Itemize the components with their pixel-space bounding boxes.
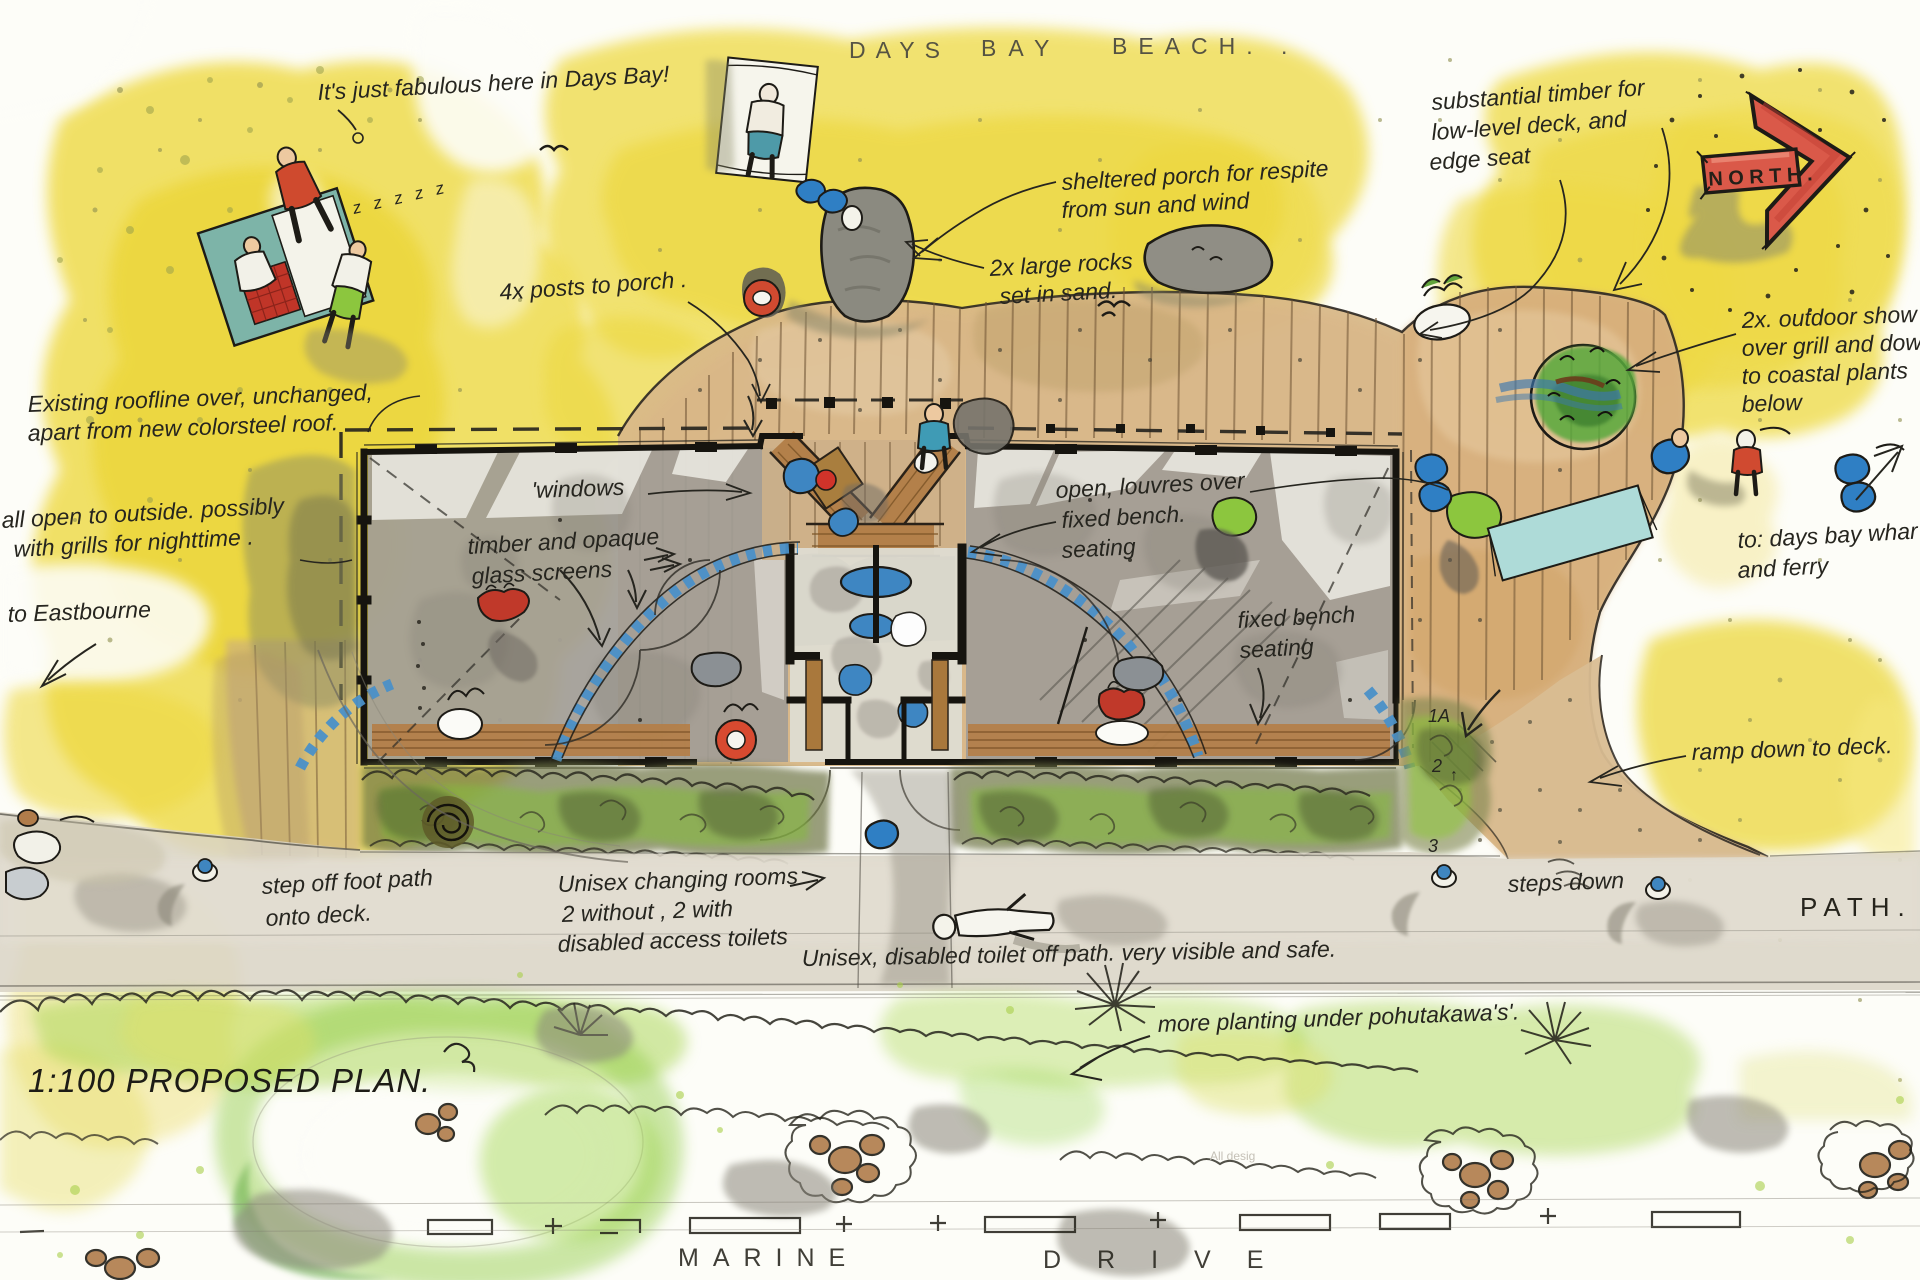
svg-text:BEACH. .: BEACH. . — [1112, 33, 1298, 59]
svg-text:All desig: All desig — [1210, 1149, 1255, 1163]
svg-text:below: below — [1741, 389, 1803, 417]
svg-text:1A: 1A — [1428, 706, 1450, 726]
svg-text:DRIVE: DRIVE — [1043, 1246, 1299, 1274]
svg-text:1:100 PROPOSED PLAN.: 1:100 PROPOSED PLAN. — [28, 1062, 431, 1099]
svg-text:↑: ↑ — [1450, 767, 1458, 784]
svg-text:and ferry: and ferry — [1737, 552, 1830, 583]
svg-text:DAYS: DAYS — [849, 37, 950, 63]
svg-text:3: 3 — [1428, 836, 1438, 856]
svg-text:'windows: 'windows — [531, 474, 625, 503]
svg-text:2: 2 — [1431, 756, 1442, 776]
svg-text:onto deck.: onto deck. — [265, 899, 372, 931]
svg-text:seating: seating — [1061, 533, 1137, 563]
svg-text:MARINE: MARINE — [678, 1244, 859, 1272]
svg-text:BAY: BAY — [981, 35, 1061, 61]
svg-text:steps down: steps down — [1507, 867, 1624, 897]
svg-text:to Eastbourne: to Eastbourne — [7, 596, 151, 627]
svg-text:PATH.: PATH. — [1800, 892, 1913, 922]
svg-text:seating: seating — [1239, 633, 1315, 663]
